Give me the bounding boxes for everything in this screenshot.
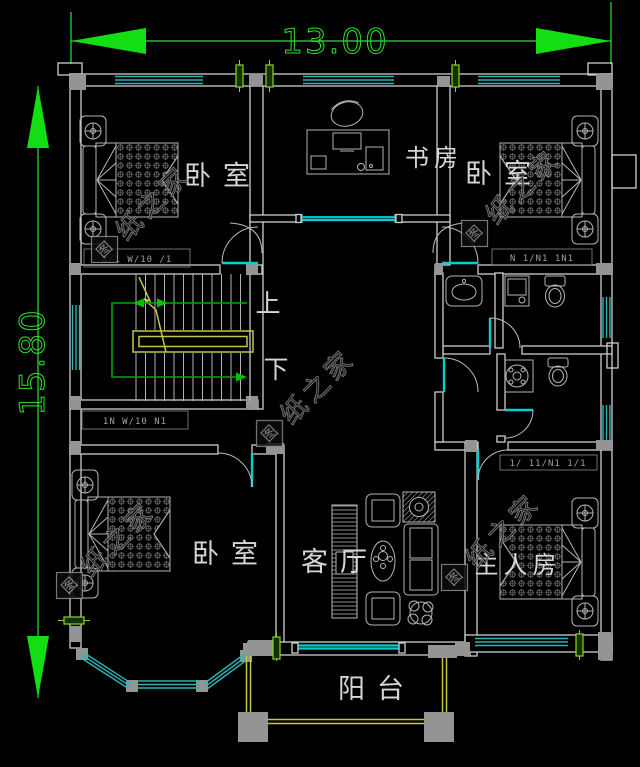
sliding-door [300, 217, 397, 220]
dimension-top: 13.00 [71, 2, 611, 64]
bathroom-fixtures [446, 276, 568, 392]
round-basin [505, 360, 533, 392]
arrow-left-icon [71, 28, 146, 54]
desk-and-chair [307, 98, 389, 174]
door-arc [444, 358, 478, 392]
arrow-down-icon [27, 636, 49, 698]
armchair [366, 494, 400, 527]
room-labels: 卧室 书房 卧室 卧室 客厅 主人房 阳台 上 下 [184, 144, 562, 705]
arrow-up-icon [27, 86, 49, 148]
window-tag-icon [273, 637, 280, 659]
label-balcony: 阳台 [338, 674, 416, 705]
arrow-right-icon [536, 28, 611, 54]
dimension-top-value: 13.00 [281, 22, 388, 62]
armchair [366, 592, 400, 625]
label-study: 书房 [405, 144, 463, 172]
floor-plan-drawing: 图 纸之家 13.00 15.80 [0, 0, 640, 767]
toilet [545, 276, 565, 307]
stair-handrail [133, 331, 253, 352]
floor-plan-canvas: 图 纸之家 13.00 15.80 [0, 0, 640, 767]
annotation-row: N 1/N1 1N1 [510, 254, 574, 264]
dimension-left-value: 15.80 [13, 308, 53, 415]
stair-break-line [139, 277, 166, 352]
window-tag-icon [452, 65, 459, 87]
label-living-room: 客厅 [301, 547, 379, 578]
window-tag-icon [576, 634, 583, 656]
window-tag-icon [236, 65, 243, 87]
annotation-row: 1N W/10 N1 [103, 417, 167, 427]
bay-window [138, 681, 200, 688]
washing-machine [505, 276, 529, 306]
label-stairs-down: 下 [263, 355, 288, 384]
toilet [548, 358, 568, 386]
window-tag-icon [64, 617, 84, 624]
bay-window [204, 654, 249, 689]
window-tag-icon [266, 65, 273, 87]
washbasin [446, 276, 482, 306]
door-arc [505, 410, 533, 438]
dimension-left: 15.80 [13, 86, 53, 698]
door-arc [478, 450, 508, 480]
staircase [112, 274, 253, 401]
annotation-row: 1/ 11/N1 1/1 [509, 459, 586, 469]
door-arc [218, 453, 252, 487]
bay-window [80, 653, 131, 689]
label-bedroom-bottom-left: 卧室 [192, 539, 270, 570]
label-stairs-up: 上 [255, 289, 280, 318]
plant [408, 601, 433, 625]
wall-pier [612, 155, 636, 188]
label-bedroom-top-left: 卧室 [184, 161, 262, 192]
